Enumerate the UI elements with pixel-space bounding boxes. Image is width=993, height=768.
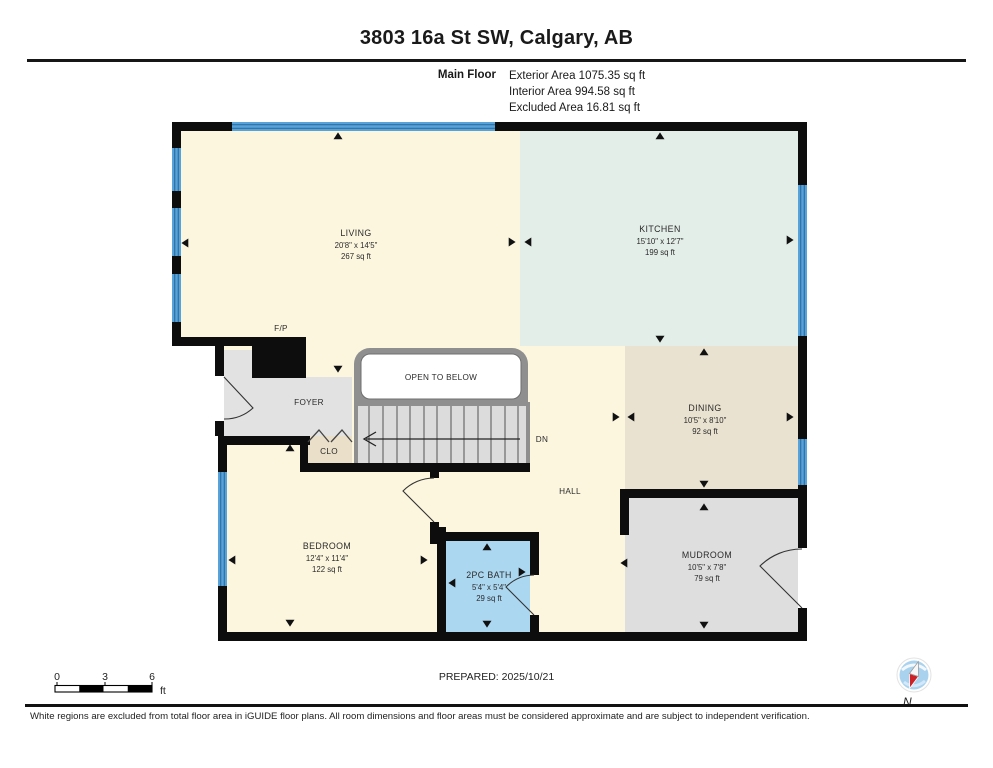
svg-text:2PC BATH: 2PC BATH: [466, 570, 512, 580]
svg-text:29 sq ft: 29 sq ft: [476, 594, 502, 603]
floor-plan-page: { "header": { "title": "3803 16a St SW, …: [0, 0, 993, 768]
svg-text:MUDROOM: MUDROOM: [682, 550, 732, 560]
window-kitchen-right: [798, 183, 807, 338]
title-divider: [27, 59, 966, 62]
window-dining-right: [798, 437, 807, 487]
stairwell: [354, 348, 528, 470]
label-hall: HALL: [559, 487, 581, 496]
window-bedroom-left: [218, 470, 227, 588]
floor-label: Main Floor: [300, 69, 496, 81]
svg-text:10'5" x 7'8": 10'5" x 7'8": [688, 563, 727, 572]
fireplace-block: [252, 337, 306, 378]
svg-text:122 sq ft: 122 sq ft: [312, 565, 343, 574]
page-title: 3803 16a St SW, Calgary, AB: [0, 27, 993, 50]
label-stairs-dn: DN: [536, 435, 548, 444]
floor-plan: LIVING 20'8" x 14'5" 267 sq ft KITCHEN 1…: [150, 112, 830, 652]
svg-text:79 sq ft: 79 sq ft: [694, 574, 720, 583]
window-top-living: [230, 122, 497, 131]
prepared-date: PREPARED: 2025/10/21: [0, 671, 993, 683]
footer-divider: [25, 704, 968, 707]
svg-text:15'10" x 12'7": 15'10" x 12'7": [636, 237, 683, 246]
svg-text:DINING: DINING: [688, 403, 721, 413]
label-open-to-below: OPEN TO BELOW: [405, 373, 477, 382]
svg-text:LIVING: LIVING: [340, 228, 371, 238]
exterior-area: Exterior Area 1075.35 sq ft: [509, 69, 645, 85]
label-foyer: FOYER: [294, 398, 324, 407]
scale-unit: ft: [160, 685, 166, 697]
svg-text:199 sq ft: 199 sq ft: [645, 248, 676, 257]
window-left-3: [172, 272, 181, 324]
area-summary: Exterior Area 1075.35 sq ft Interior Are…: [509, 69, 645, 116]
disclaimer-text: White regions are excluded from total fl…: [30, 711, 970, 722]
svg-text:BEDROOM: BEDROOM: [303, 541, 351, 551]
svg-text:92 sq ft: 92 sq ft: [692, 427, 718, 436]
svg-text:10'5" x 8'10": 10'5" x 8'10": [684, 416, 727, 425]
svg-text:12'4" x 11'4": 12'4" x 11'4": [306, 554, 348, 563]
svg-text:20'8" x 14'5": 20'8" x 14'5": [335, 241, 378, 250]
window-left-2: [172, 206, 181, 258]
svg-text:5'4" x 5'4": 5'4" x 5'4": [472, 583, 506, 592]
label-fireplace: F/P: [274, 324, 288, 333]
svg-text:KITCHEN: KITCHEN: [639, 224, 680, 234]
compass-icon: N: [891, 651, 939, 709]
svg-text:267 sq ft: 267 sq ft: [341, 252, 372, 261]
label-closet: CLO: [320, 447, 338, 456]
window-left-1: [172, 146, 181, 193]
interior-area: Interior Area 994.58 sq ft: [509, 85, 645, 101]
